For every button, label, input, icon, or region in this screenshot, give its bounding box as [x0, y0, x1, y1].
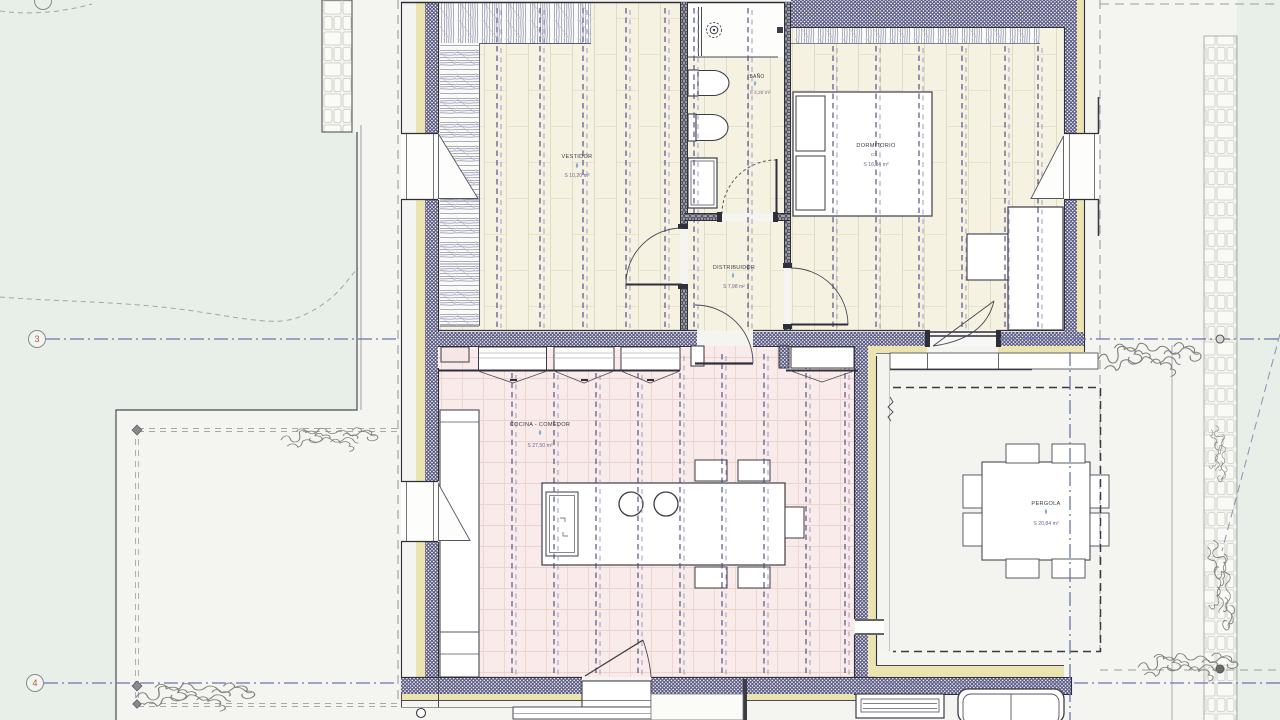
svg-text:S 27,50 m²: S 27,50 m²	[527, 443, 553, 449]
svg-text:VESTIDOR: VESTIDOR	[562, 154, 593, 160]
svg-text:COCINA - COMEDOR: COCINA - COMEDOR	[510, 422, 570, 428]
svg-text:C3: C3	[871, 152, 877, 158]
svg-text:3: 3	[34, 334, 39, 344]
svg-text:S 4,20 m²: S 4,20 m²	[750, 90, 771, 96]
svg-text:4: 4	[32, 678, 37, 688]
svg-text:S 16,84 m²: S 16,84 m²	[863, 162, 889, 168]
svg-text:S 7,98 m²: S 7,98 m²	[723, 284, 745, 290]
svg-text:BAÑO: BAÑO	[750, 73, 765, 80]
svg-text:PERGOLA: PERGOLA	[1031, 501, 1060, 507]
svg-text:S 20,84 m²: S 20,84 m²	[1033, 521, 1059, 527]
svg-text:DISTRIBUIDOR: DISTRIBUIDOR	[713, 265, 755, 271]
svg-text:S 10,20 m²: S 10,20 m²	[564, 173, 590, 179]
svg-text:DORMITORIO: DORMITORIO	[856, 143, 896, 149]
